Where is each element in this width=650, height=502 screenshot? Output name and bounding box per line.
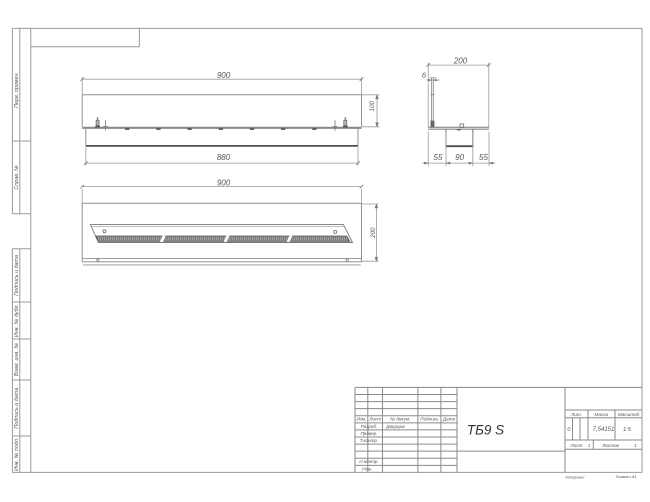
svg-text:Копировал: Копировал [565,476,585,480]
svg-text:Дворцов: Дворцов [385,424,405,429]
svg-text:900: 900 [217,178,231,187]
svg-text:100: 100 [369,100,376,111]
svg-text:Разраб.: Разраб. [361,424,378,429]
svg-text:200: 200 [453,57,468,66]
svg-text:1:5: 1:5 [623,427,632,433]
svg-text:Формат А4: Формат А4 [616,475,637,479]
svg-text:200: 200 [370,227,377,239]
svg-text:880: 880 [217,153,231,162]
svg-text:Масса: Масса [595,412,609,417]
svg-text:7,54151: 7,54151 [593,427,615,433]
svg-text:1: 1 [634,443,637,448]
svg-text:Лист: Лист [569,443,582,448]
svg-text:900: 900 [217,71,231,80]
svg-text:Перв. примен.: Перв. примен. [14,72,20,108]
svg-text:Инв. № дубл.: Инв. № дубл. [14,304,20,337]
svg-text:Лит.: Лит. [570,412,582,417]
svg-text:55: 55 [479,153,488,162]
svg-text:Утв.: Утв. [362,466,372,471]
svg-text:Дата: Дата [442,417,456,422]
svg-text:1: 1 [588,443,591,448]
svg-text:Подпись и дата: Подпись и дата [14,255,20,296]
svg-text:ТБ9 S: ТБ9 S [467,423,504,438]
svg-text:Т.контр.: Т.контр. [360,438,379,443]
svg-text:Провер.: Провер. [360,431,377,436]
svg-text:Инв. № подл.: Инв. № подл. [14,438,20,471]
svg-text:№ докум.: № докум. [390,417,410,422]
svg-text:Изм.: Изм. [357,417,367,422]
svg-text:Масштаб: Масштаб [618,412,640,417]
svg-text:Взам. инв. №: Взам. инв. № [14,343,20,377]
svg-text:55: 55 [434,153,443,162]
svg-text:Н.контр.: Н.контр. [359,459,378,464]
svg-text:Листов: Листов [601,443,619,448]
svg-text:Справ. №: Справ. № [14,165,20,190]
svg-text:Подпись: Подпись [420,417,439,422]
svg-text:Подпись и дата: Подпись и дата [14,388,20,429]
svg-text:Лист: Лист [368,417,381,422]
svg-text:90: 90 [455,153,464,162]
